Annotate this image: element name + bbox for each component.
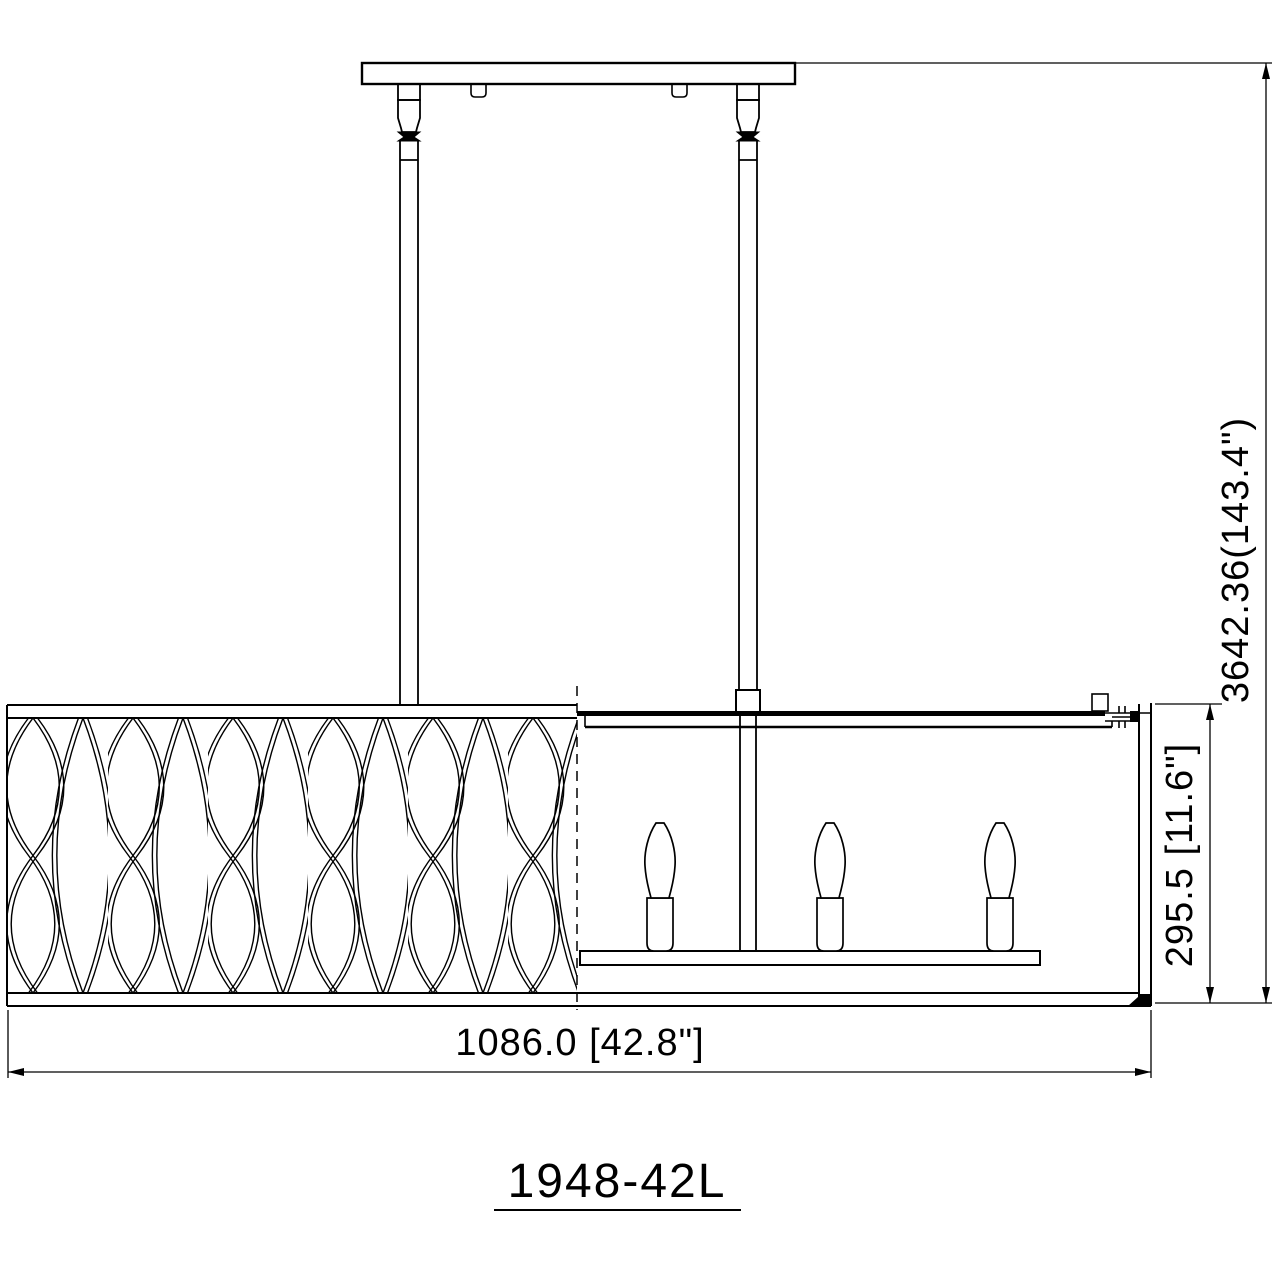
- interior-stem: [740, 716, 756, 951]
- right-downrod: [736, 141, 760, 712]
- right-hanger-swivel: [737, 84, 759, 141]
- candle-lamp-3: [985, 823, 1015, 951]
- left-downrod: [400, 141, 418, 705]
- shade-wave-pattern: [8, 718, 577, 993]
- model-number-text: 1948-42L: [508, 1155, 727, 1208]
- candle-lamps: [645, 823, 1015, 951]
- candle-lamp-2: [815, 823, 845, 951]
- line-drawing-canvas: 1086.0 [42.8"] 295.5 [11.6"] 3642.36(143…: [0, 0, 1280, 1280]
- ceiling-canopy: [362, 63, 795, 97]
- model-number-label: 1948-42L: [494, 1155, 741, 1210]
- top-right-bracket: [1092, 694, 1151, 728]
- candle-lamp-1: [645, 823, 675, 951]
- width-dimension-label: 1086.0 [42.8"]: [455, 1022, 704, 1064]
- right-end-frame: [1128, 703, 1151, 1006]
- left-hanger-swivel: [398, 84, 420, 141]
- overall-height-dimension-label: 3642.36(143.4"): [1215, 417, 1257, 703]
- technical-drawing-page: 1086.0 [42.8"] 295.5 [11.6"] 3642.36(143…: [0, 0, 1280, 1280]
- lamp-deck-plate: [580, 951, 1040, 965]
- shade-height-dimension-label: 295.5 [11.6"]: [1159, 743, 1201, 967]
